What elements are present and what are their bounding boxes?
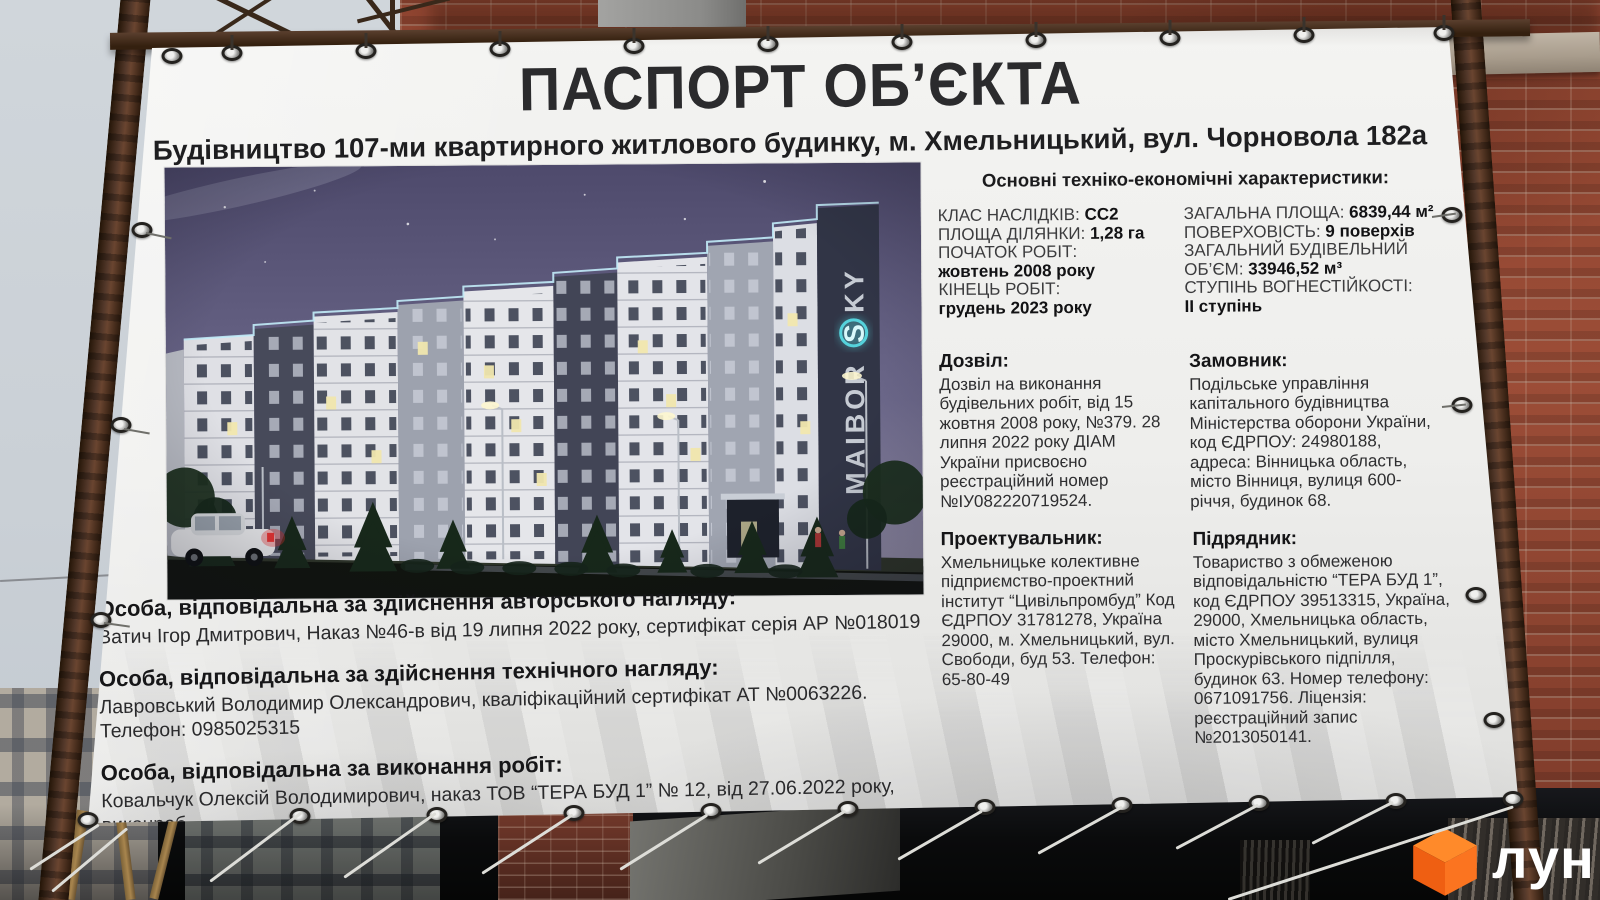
hook [1169, 20, 1172, 35]
section-contractor-heading: Підрядник: [1193, 528, 1461, 550]
section-permit: Дозвіл: Дозвіл на виконання будівельних … [939, 350, 1178, 511]
building-render: MAIBOR S KY [165, 162, 924, 599]
responsible-technical-supervision: Особа, відповідальна за здійснення техні… [99, 650, 980, 744]
section-contractor-body: Товариство з обмеженою відповідальністю … [1193, 550, 1463, 747]
grommet [1503, 791, 1524, 807]
grommet [132, 222, 153, 238]
grommet [91, 612, 112, 628]
concrete-block [598, 0, 746, 27]
passport-banner: ПАСПОРТ ОБ’ЄКТА Будівництво 107-ми кварт… [0, 0, 1600, 900]
grommet [1466, 587, 1487, 603]
characteristics-left: КЛАС НАСЛІДКІВ: СС2 ПЛОЩА ДІЛЯНКИ: 1,28 … [938, 205, 1179, 319]
grommet [1386, 793, 1407, 809]
section-contractor: Підрядник: Товариство з обмеженою відпов… [1193, 528, 1463, 748]
hook [633, 28, 636, 43]
hook [365, 33, 368, 48]
grommet [1484, 712, 1505, 728]
hook [1035, 22, 1038, 37]
section-designer-heading: Проектувальник: [941, 528, 1183, 550]
scaffold-post [390, 0, 395, 32]
characteristics-columns: КЛАС НАСЛІДКІВ: СС2 ПЛОЩА ДІЛЯНКИ: 1,28 … [930, 203, 1443, 319]
section-customer: Замовник: Подільське управління капіталь… [1189, 350, 1446, 511]
hook [1443, 15, 1446, 30]
hook [231, 35, 234, 50]
hook [499, 31, 502, 46]
section-permit-heading: Дозвіл: [939, 350, 1177, 372]
construction-site-photo: ПАСПОРТ ОБ’ЄКТА Будівництво 107-ми кварт… [0, 0, 1600, 900]
grommet [162, 48, 183, 64]
section-customer-body: Подільське управління капітального будів… [1189, 372, 1446, 511]
hook [1303, 17, 1306, 32]
lun-watermark-text: лун [1492, 826, 1595, 891]
characteristics-right: ЗАГАЛЬНА ПЛОЩА: 6839,44 м² ПОВЕРХОВІСТЬ:… [1184, 203, 1443, 317]
hook [901, 24, 904, 39]
info-panel: Основні техніко-економічні характеристик… [929, 166, 1442, 319]
hook [767, 26, 770, 41]
characteristics-heading: Основні техніко-економічні характеристик… [929, 166, 1441, 192]
section-customer-heading: Замовник: [1189, 350, 1445, 372]
building-render-svg: MAIBOR S KY [165, 162, 924, 599]
section-permit-body: Дозвіл на виконання будівельних робіт, в… [939, 373, 1178, 512]
